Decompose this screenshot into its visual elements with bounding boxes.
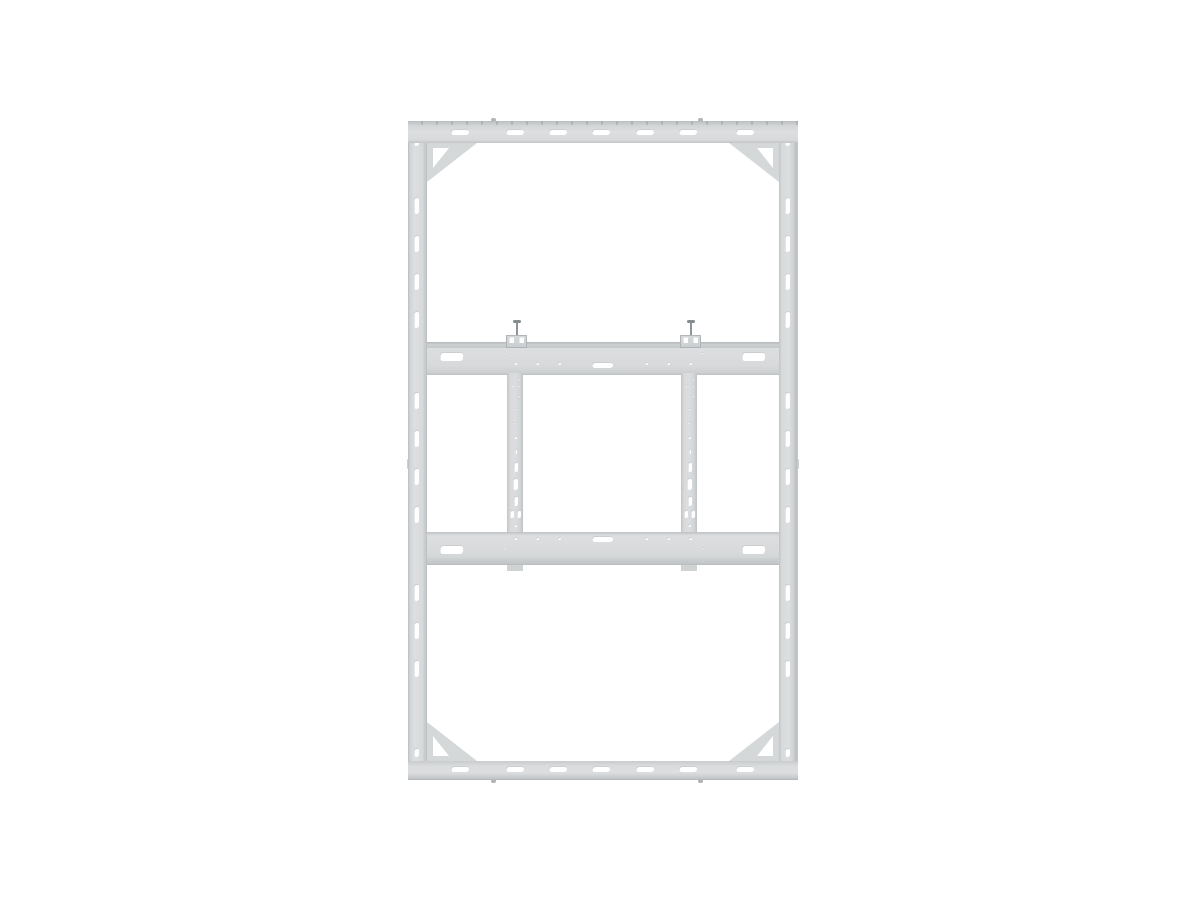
mounting-slot — [414, 584, 419, 601]
mounting-slot — [785, 622, 790, 639]
vesa-hole — [685, 385, 687, 387]
screw-hole — [667, 362, 670, 365]
end-slot — [742, 545, 765, 554]
end-slot — [440, 545, 463, 554]
mounting-slot — [785, 273, 790, 290]
wall-mount-frame — [408, 121, 798, 780]
mounting-slot — [592, 129, 610, 135]
vesa-hole — [688, 408, 690, 410]
clamp-screw — [690, 322, 692, 335]
vesa-hole — [514, 496, 518, 506]
screw-hole — [689, 537, 692, 540]
display-clamp-right — [680, 335, 701, 348]
vesa-hole — [510, 510, 514, 518]
bottom-rail — [408, 761, 798, 780]
top-rail — [408, 121, 798, 143]
mounting-slot — [785, 235, 790, 252]
mounting-slot — [414, 622, 419, 639]
vesa-hole — [515, 449, 517, 454]
clamp-notch — [509, 337, 514, 343]
screw-hole — [536, 537, 539, 540]
end-slot — [742, 352, 765, 361]
mounting-slot — [785, 748, 790, 757]
vesa-hole — [688, 462, 692, 472]
screw-hole — [702, 547, 704, 549]
mounting-slot — [679, 766, 697, 772]
vesa-hole — [514, 524, 517, 527]
top-edge — [408, 121, 798, 125]
clamp-notch — [683, 337, 688, 343]
end-slot — [440, 352, 463, 361]
corner-gusset-bottom-right — [729, 722, 779, 761]
screw-hole — [503, 352, 505, 354]
vesa-hole — [689, 449, 691, 454]
mounting-slot — [414, 468, 419, 485]
clamp-screw-head — [687, 320, 695, 323]
vesa-rail-right — [681, 373, 697, 532]
vesa-hole — [514, 408, 516, 410]
screw-hole — [503, 547, 505, 549]
corner-gusset-top-right — [729, 143, 779, 182]
mounting-slot — [549, 129, 567, 135]
screw-hole — [514, 537, 517, 540]
screw-hole — [645, 537, 648, 540]
vesa-hole — [692, 378, 694, 380]
left-rail — [408, 121, 427, 780]
mounting-slot — [414, 273, 419, 290]
screw-hole — [558, 537, 561, 540]
mounting-slot — [506, 129, 524, 135]
mounting-slot — [785, 584, 790, 601]
mounting-slot — [785, 506, 790, 523]
mounting-slot — [414, 430, 419, 447]
mounting-slot — [506, 766, 524, 772]
clamp-screw-head — [513, 320, 521, 323]
vesa-hole — [688, 496, 692, 506]
vesa-hole — [518, 385, 520, 387]
display-clamp-left — [506, 335, 527, 348]
mounting-slot — [785, 430, 790, 447]
vesa-hole — [687, 422, 689, 424]
mounting-slot — [414, 311, 419, 328]
vesa-hole — [513, 478, 518, 490]
gusset-cutout — [757, 148, 773, 168]
crossbar-lip — [427, 558, 779, 565]
corner-gusset-bottom-left — [427, 722, 477, 761]
crossbar-tab — [681, 565, 697, 571]
screw-hole — [536, 362, 539, 365]
clamp-notch — [693, 337, 698, 343]
mounting-slot — [785, 660, 790, 677]
screw-hole — [558, 362, 561, 365]
right-rail — [779, 121, 798, 780]
vesa-hole — [513, 422, 515, 424]
mounting-slot — [414, 197, 419, 214]
vesa-hole — [692, 385, 694, 387]
mounting-slot — [736, 129, 754, 135]
mounting-slot — [451, 766, 469, 772]
mounting-slot — [636, 129, 654, 135]
mounting-slot — [736, 766, 754, 772]
lower-crossbar — [427, 532, 779, 565]
center-slot — [592, 362, 613, 368]
vesa-hole — [514, 462, 518, 472]
screw-hole — [514, 362, 517, 365]
mounting-slot — [414, 235, 419, 252]
mounting-slot — [785, 468, 790, 485]
mounting-slot — [679, 129, 697, 135]
clamp-notch — [519, 337, 524, 343]
corner-gusset-top-left — [427, 143, 477, 182]
mounting-slot — [549, 766, 567, 772]
vesa-hole — [517, 510, 521, 518]
mounting-slot — [414, 748, 419, 757]
crossbar-tab — [507, 565, 523, 571]
center-slot — [592, 536, 613, 542]
vesa-hole — [511, 385, 513, 387]
clamp-screw — [516, 322, 518, 335]
vesa-hole — [518, 395, 520, 397]
mounting-slot — [636, 766, 654, 772]
product-image — [0, 0, 1200, 900]
vesa-hole — [687, 478, 692, 490]
vesa-hole — [688, 436, 691, 439]
mounting-slot — [785, 311, 790, 328]
mounting-slot — [414, 392, 419, 409]
upper-crossbar — [427, 342, 779, 375]
gusset-cutout — [433, 148, 449, 168]
vesa-hole — [514, 436, 517, 439]
gusset-cutout — [433, 736, 449, 756]
vesa-hole — [688, 524, 691, 527]
gusset-cutout — [757, 736, 773, 756]
mounting-slot — [785, 392, 790, 409]
mounting-slot — [451, 129, 469, 135]
mounting-slot — [414, 660, 419, 677]
vesa-hole — [692, 395, 694, 397]
vesa-rail-left — [507, 373, 523, 532]
screw-hole — [702, 352, 704, 354]
screw-hole — [689, 362, 692, 365]
mounting-slot — [785, 197, 790, 214]
screw-hole — [667, 537, 670, 540]
vesa-hole — [691, 510, 695, 518]
screw-hole — [645, 362, 648, 365]
vesa-hole — [518, 378, 520, 380]
vesa-hole — [684, 510, 688, 518]
mounting-slot — [592, 766, 610, 772]
mounting-slot — [414, 506, 419, 523]
